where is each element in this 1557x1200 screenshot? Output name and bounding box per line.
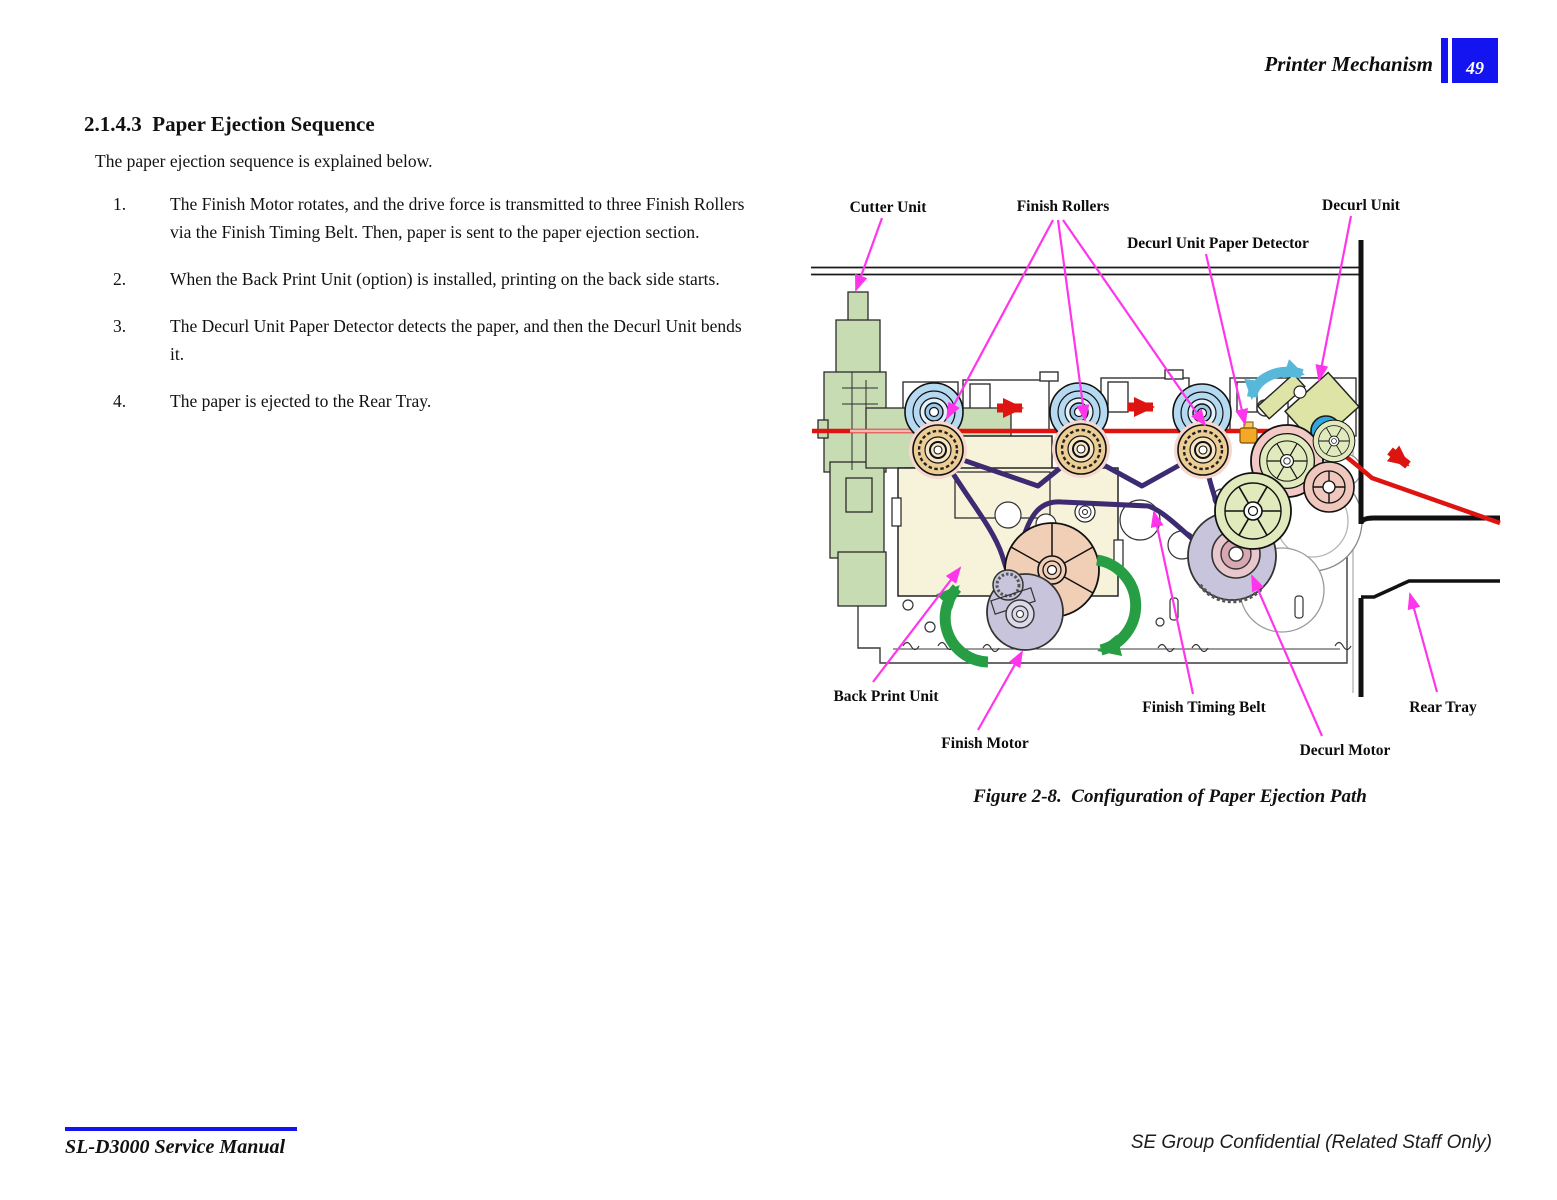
label-finish-rollers: Finish Rollers [1017, 198, 1110, 215]
footer-confidential-note: SE Group Confidential (Related Staff Onl… [1131, 1132, 1492, 1154]
step-number: 2. [113, 265, 170, 293]
page-number-badge: 49 [1452, 38, 1498, 83]
list-item: 3. The Decurl Unit Paper Detector detect… [113, 312, 761, 368]
header-accent-bar [1441, 38, 1448, 83]
list-item: 2. When the Back Print Unit (option) is … [113, 265, 761, 293]
step-number: 4. [113, 387, 170, 415]
label-finish-timing-belt: Finish Timing Belt [1142, 699, 1266, 716]
step-text: The paper is ejected to the Rear Tray. [170, 387, 758, 415]
label-decurl-unit: Decurl Unit [1322, 197, 1401, 214]
step-number: 3. [113, 312, 170, 368]
manual-page: Printer Mechanism 49 2.1.4.3 Paper Eject… [0, 0, 1557, 1200]
figure-caption: Figure 2-8. Configuration of Paper Eject… [810, 786, 1530, 808]
label-decurl-motor: Decurl Motor [1300, 742, 1391, 759]
finish-roller-3 [1173, 384, 1232, 479]
section-heading: 2.1.4.3 Paper Ejection Sequence [84, 112, 375, 137]
section-intro: The paper ejection sequence is explained… [95, 151, 433, 172]
label-rear-tray: Rear Tray [1409, 699, 1477, 716]
label-finish-motor: Finish Motor [941, 735, 1029, 752]
finish-roller-2 [1050, 383, 1110, 478]
rear-wall [1361, 240, 1500, 697]
paper-ejection-diagram: Cutter Unit Finish Rollers Decurl Unit D… [800, 185, 1545, 785]
step-text: When the Back Print Unit (option) is ins… [170, 265, 758, 293]
step-text: The Decurl Unit Paper Detector detects t… [170, 312, 758, 368]
step-list: 1. The Finish Motor rotates, and the dri… [113, 190, 761, 434]
step-number: 1. [113, 190, 170, 246]
list-item: 1. The Finish Motor rotates, and the dri… [113, 190, 761, 246]
rear-tray-shape [1361, 581, 1500, 597]
footer-manual-title: SL-D3000 Service Manual [65, 1136, 285, 1159]
footer-accent-line [65, 1127, 297, 1131]
page-header-title: Printer Mechanism [1264, 52, 1433, 77]
page-number: 49 [1466, 58, 1484, 79]
label-cutter-unit: Cutter Unit [850, 199, 928, 216]
top-frame-lines [811, 268, 1361, 275]
label-back-print-unit: Back Print Unit [833, 688, 939, 705]
list-item: 4. The paper is ejected to the Rear Tray… [113, 387, 761, 415]
step-text: The Finish Motor rotates, and the drive … [170, 190, 758, 246]
eject-arrow [1390, 451, 1408, 465]
label-decurl-detector: Decurl Unit Paper Detector [1127, 235, 1309, 252]
